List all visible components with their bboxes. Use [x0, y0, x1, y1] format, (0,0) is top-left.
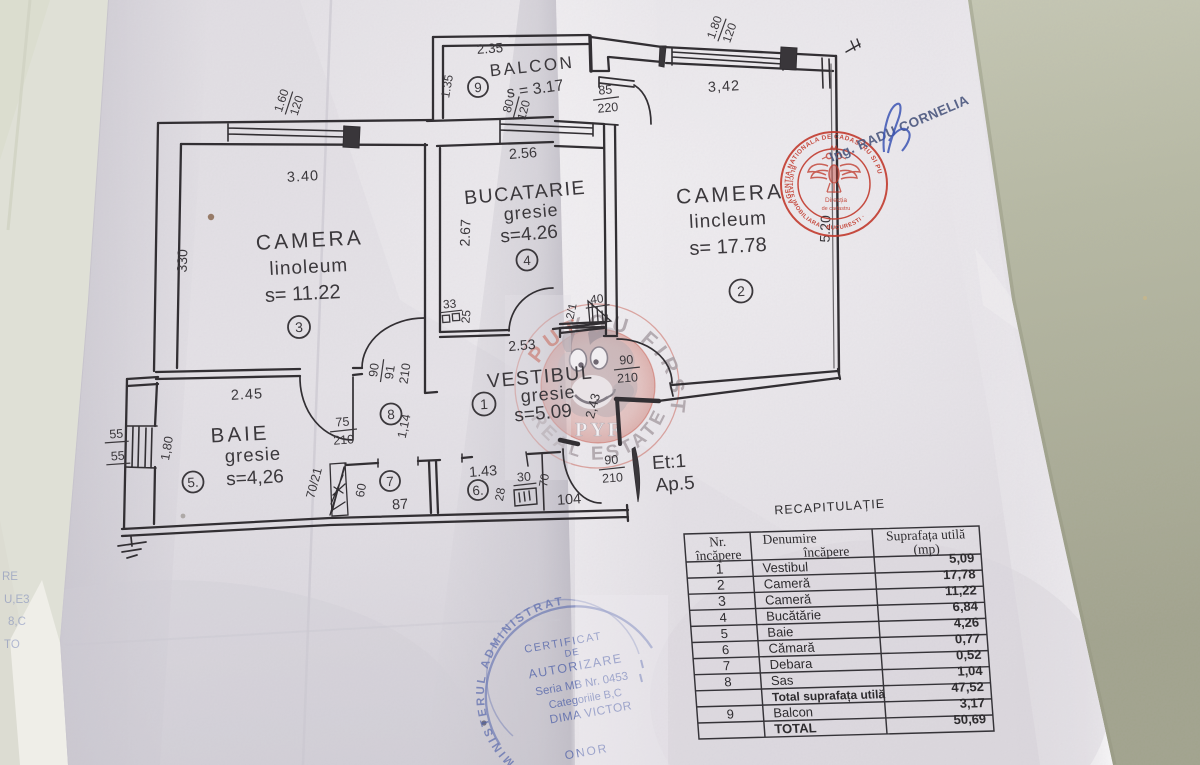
svg-text:8: 8: [724, 674, 732, 689]
svg-text:2.67: 2.67: [457, 219, 474, 247]
svg-text:210: 210: [333, 432, 355, 447]
svg-text:2.45: 2.45: [230, 386, 263, 404]
svg-text:40: 40: [590, 291, 605, 306]
svg-text:91: 91: [382, 364, 398, 380]
svg-text:U,E3: U,E3: [4, 594, 30, 606]
svg-text:25: 25: [458, 309, 473, 324]
svg-text:Cameră: Cameră: [763, 575, 811, 591]
svg-text:0,77: 0,77: [954, 631, 980, 647]
svg-text:4: 4: [719, 610, 727, 625]
svg-text:70: 70: [536, 472, 552, 488]
svg-text:55: 55: [109, 427, 124, 442]
svg-text:(mp): (mp): [913, 541, 940, 558]
svg-text:28: 28: [492, 486, 508, 502]
svg-text:9: 9: [474, 80, 482, 95]
svg-text:0,52: 0,52: [956, 647, 982, 663]
svg-text:de cadastru: de cadastru: [822, 206, 851, 212]
svg-text:7: 7: [723, 658, 731, 673]
svg-text:s= 11.22: s= 11.22: [264, 281, 341, 307]
svg-text:330: 330: [174, 249, 191, 273]
svg-text:75: 75: [335, 415, 350, 430]
svg-text:85: 85: [598, 82, 613, 97]
svg-text:3: 3: [295, 319, 304, 335]
svg-text:11,22: 11,22: [944, 582, 977, 598]
svg-text:104: 104: [557, 491, 582, 509]
svg-text:TO: TO: [4, 639, 20, 651]
svg-text:30: 30: [517, 470, 532, 485]
svg-text:Direcția: Direcția: [825, 197, 847, 204]
svg-text:gresie: gresie: [224, 443, 281, 467]
svg-text:Vestibul: Vestibul: [762, 559, 809, 575]
svg-text:2.53: 2.53: [508, 336, 537, 354]
svg-text:210: 210: [397, 362, 414, 385]
svg-text:PYF: PYF: [575, 419, 623, 441]
svg-text:87: 87: [392, 496, 409, 513]
svg-text:Debara: Debara: [769, 656, 813, 672]
svg-text:210: 210: [617, 370, 639, 385]
svg-text:60: 60: [353, 482, 369, 498]
svg-text:3,17: 3,17: [959, 695, 985, 711]
svg-text:2.56: 2.56: [508, 145, 537, 163]
svg-text:Ap.5: Ap.5: [655, 473, 695, 497]
svg-text:90: 90: [619, 353, 634, 368]
svg-text:TOTAL: TOTAL: [774, 720, 817, 736]
svg-text:6.: 6.: [472, 483, 484, 499]
svg-text:RE: RE: [2, 571, 18, 583]
svg-text:Sas: Sas: [770, 673, 794, 689]
svg-text:55: 55: [110, 449, 125, 464]
svg-text:s=4,26: s=4,26: [226, 466, 285, 490]
svg-text:5.: 5.: [187, 475, 199, 491]
svg-text:încăpere: încăpere: [802, 544, 850, 560]
svg-text:90: 90: [604, 453, 619, 468]
svg-text:9: 9: [726, 706, 734, 721]
svg-text:Baie: Baie: [767, 624, 794, 640]
svg-text:lincleum: lincleum: [689, 208, 768, 233]
svg-text:4: 4: [523, 253, 532, 268]
svg-text:5: 5: [720, 626, 728, 641]
svg-text:linoleum: linoleum: [269, 255, 349, 280]
svg-text:s= 17.78: s= 17.78: [689, 234, 767, 260]
svg-text:1: 1: [715, 561, 724, 577]
svg-text:1.43: 1.43: [468, 463, 497, 481]
svg-text:3: 3: [717, 593, 726, 609]
svg-text:Bucătărie: Bucătărie: [766, 607, 822, 623]
svg-text:220: 220: [597, 100, 619, 116]
svg-text:1,04: 1,04: [957, 663, 984, 679]
svg-text:2: 2: [716, 577, 725, 593]
svg-text:6: 6: [721, 642, 729, 657]
svg-text:6,84: 6,84: [952, 598, 979, 614]
svg-text:4,26: 4,26: [953, 615, 979, 631]
svg-text:47,52: 47,52: [951, 679, 985, 695]
svg-text:5,09: 5,09: [948, 550, 974, 566]
svg-text:50,69: 50,69: [953, 711, 987, 727]
svg-text:Cămară: Cămară: [768, 640, 816, 656]
svg-text:8,C: 8,C: [8, 616, 26, 628]
svg-text:3.40: 3.40: [287, 168, 320, 186]
svg-text:2: 2: [737, 283, 746, 299]
svg-text:2.35: 2.35: [476, 40, 503, 57]
svg-text:33: 33: [442, 297, 457, 312]
svg-text:17,78: 17,78: [942, 566, 976, 582]
svg-text:3,42: 3,42: [708, 78, 741, 96]
svg-text:210: 210: [602, 470, 624, 485]
svg-text:Et:1: Et:1: [651, 451, 686, 474]
svg-text:1: 1: [480, 396, 489, 412]
svg-text:90: 90: [366, 362, 382, 378]
svg-text:Cameră: Cameră: [764, 591, 812, 607]
svg-text:Balcon: Balcon: [773, 704, 814, 720]
svg-text:7: 7: [386, 474, 394, 489]
svg-text:8: 8: [387, 407, 395, 422]
